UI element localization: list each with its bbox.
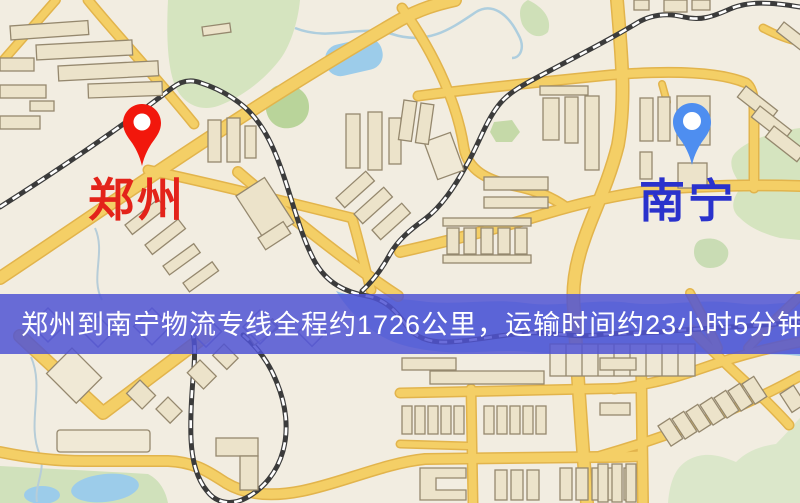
route-banner: 郑州到南宁物流专线全程约1726公里，运输时间约23小时5分钟. [0, 294, 800, 354]
route-banner-text: 郑州到南宁物流专线全程约1726公里，运输时间约23小时5分钟. [21, 303, 800, 342]
map-canvas[interactable] [0, 0, 800, 503]
map-image: 郑州到南宁物流专线全程约1726公里，运输时间约23小时5分钟. 郑州 南宁 [0, 0, 800, 503]
pin-icon [672, 102, 712, 167]
origin-marker-pin[interactable] [122, 103, 162, 168]
origin-city-label: 郑州 [88, 178, 186, 224]
pin-icon [122, 103, 162, 168]
destination-marker-pin[interactable] [672, 102, 712, 167]
destination-city-label: 南宁 [639, 179, 737, 225]
